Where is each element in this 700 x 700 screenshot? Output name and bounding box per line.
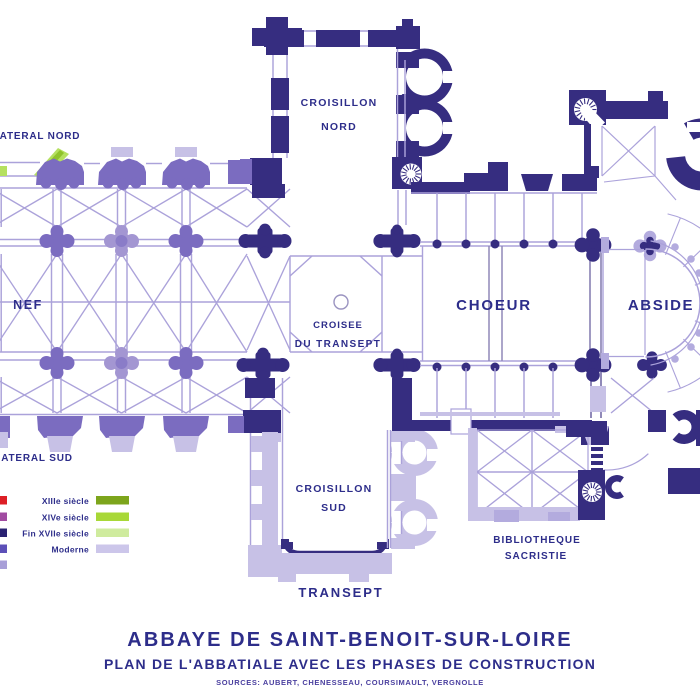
svg-text:XIVe siècle: XIVe siècle: [42, 513, 89, 523]
svg-text:CHOEUR: CHOEUR: [456, 297, 532, 314]
svg-text:NEF: NEF: [13, 298, 43, 312]
svg-text:CROISEE: CROISEE: [313, 320, 363, 331]
svg-text:DU TRANSEPT: DU TRANSEPT: [295, 339, 382, 350]
svg-text:PLAN DE L'ABBATIALE AVEC LES P: PLAN DE L'ABBATIALE AVEC LES PHASES DE C…: [104, 656, 596, 672]
svg-text:ABSIDE: ABSIDE: [628, 297, 694, 314]
svg-text:CROISILLON: CROISILLON: [296, 483, 373, 495]
svg-text:BIBLIOTHEQUE: BIBLIOTHEQUE: [493, 535, 581, 546]
svg-text:TRANSEPT: TRANSEPT: [298, 585, 383, 600]
svg-text:NORD: NORD: [321, 121, 357, 133]
svg-text:ABBAYE DE SAINT-BENOIT-SUR-LOI: ABBAYE DE SAINT-BENOIT-SUR-LOIRE: [127, 629, 572, 651]
svg-text:SOURCES: AUBERT, CHENESSEAU, C: SOURCES: AUBERT, CHENESSEAU, COURSIMAULT…: [216, 678, 484, 687]
svg-text:ATERAL SUD: ATERAL SUD: [1, 453, 73, 464]
svg-text:XIIIe siècle: XIIIe siècle: [42, 496, 89, 506]
svg-text:ATERAL NORD: ATERAL NORD: [0, 131, 80, 142]
svg-text:SACRISTIE: SACRISTIE: [505, 551, 567, 562]
svg-text:SUD: SUD: [321, 502, 347, 514]
svg-text:CROISILLON: CROISILLON: [301, 97, 378, 109]
svg-text:Fin XVIIe siècle: Fin XVIIe siècle: [22, 529, 89, 539]
svg-text:Moderne: Moderne: [51, 545, 89, 555]
